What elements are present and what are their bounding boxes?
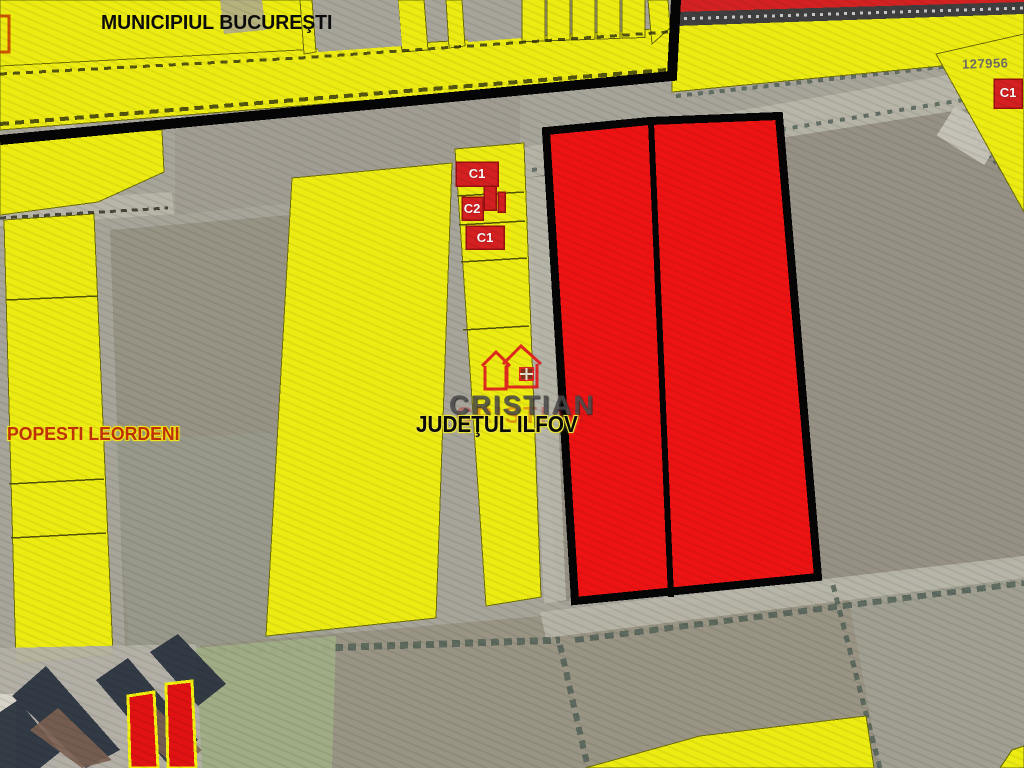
highlighted-building-1: [128, 692, 158, 768]
cadastral-map-screenshot: MUNICIPIUL BUCUREŞTI 127956 POPESTI LEOR…: [0, 0, 1024, 768]
building-label-c1-top: C1: [457, 166, 497, 181]
region-label-bucuresti: MUNICIPIUL BUCUREŞTI: [101, 13, 332, 33]
house-logo-icon: [481, 341, 543, 395]
highlighted-building-2: [166, 681, 196, 768]
parcel-number-label: 127956: [962, 56, 1009, 71]
grass-field: [196, 636, 336, 768]
building-label-c1-right: C1: [994, 85, 1022, 100]
apartment-blocks: [0, 634, 336, 768]
highlighted-parcel: [546, 116, 818, 601]
zone-center-strip: [266, 163, 452, 636]
region-label-popesti-leordeni: POPESTI LEORDENI: [7, 425, 180, 443]
red-parcel-outline: [546, 116, 818, 601]
building-label-c1-lower: C1: [465, 230, 505, 245]
region-label-judetul-ilfov: JUDEŢUL ILFOV: [416, 413, 578, 436]
building-label-c2: C2: [459, 201, 485, 216]
